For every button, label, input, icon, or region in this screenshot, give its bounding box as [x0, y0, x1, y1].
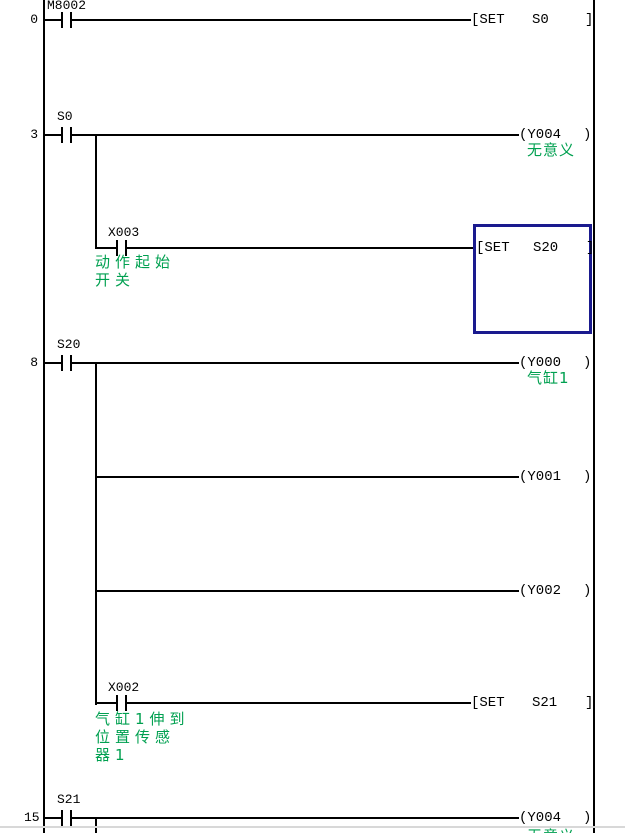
- set-operand: S0: [532, 13, 549, 27]
- rung-step-number: 8: [24, 356, 38, 369]
- device-comment-line1: 动作起始: [95, 255, 175, 271]
- wire: [127, 247, 473, 249]
- rung-step-number: 15: [24, 811, 38, 824]
- set-close-bracket: ]: [585, 13, 593, 27]
- set-operand: S21: [532, 696, 557, 710]
- device-comment-line3: 器1: [95, 748, 130, 764]
- wire: [95, 476, 519, 478]
- coil-y004-2[interactable]: (Y004 ): [519, 811, 593, 827]
- contact-bar: [61, 127, 63, 143]
- left-power-rail: [43, 0, 45, 833]
- coil-open-label: (Y000: [519, 356, 561, 370]
- contact-bar: [61, 810, 63, 826]
- branch-wire-vertical: [95, 817, 97, 833]
- set-operand: S20: [533, 241, 558, 255]
- wire: [44, 817, 61, 819]
- device-comment: 气缸1: [527, 371, 570, 387]
- device-comment-clipped: 无意义: [527, 829, 575, 833]
- coil-close-paren: ): [583, 128, 591, 142]
- wire: [44, 362, 61, 364]
- set-opcode: [SET: [471, 13, 505, 27]
- wire: [95, 247, 116, 249]
- contact-no-x002[interactable]: [116, 695, 127, 711]
- contact-bar: [61, 355, 63, 371]
- wire: [71, 817, 519, 819]
- coil-y001[interactable]: (Y001 ): [519, 470, 593, 486]
- coil-open-label: (Y004: [519, 128, 561, 142]
- coil-y002[interactable]: (Y002 ): [519, 584, 593, 600]
- rung-step-number: 3: [24, 128, 38, 141]
- set-instruction-s20[interactable]: [SET S20 ]: [476, 241, 598, 257]
- set-opcode: [SET: [476, 241, 510, 255]
- coil-close-paren: ): [583, 470, 591, 484]
- coil-open-label: (Y004: [519, 811, 561, 825]
- contact-bar: [116, 695, 118, 711]
- wire: [44, 134, 61, 136]
- wire: [95, 702, 116, 704]
- contact-device-label: X003: [108, 226, 139, 239]
- window-edge-divider: [0, 826, 625, 828]
- device-comment-line2: 开关: [95, 273, 135, 289]
- coil-close-paren: ): [583, 811, 591, 825]
- branch-wire-vertical: [95, 362, 97, 705]
- wire: [71, 19, 471, 21]
- coil-open-label: (Y001: [519, 470, 561, 484]
- device-comment-line2: 位置传感: [95, 730, 175, 746]
- wire: [95, 590, 519, 592]
- set-close-bracket: ]: [585, 696, 593, 710]
- coil-close-paren: ): [583, 584, 591, 598]
- contact-bar: [61, 12, 63, 28]
- wire: [127, 702, 471, 704]
- wire: [71, 362, 519, 364]
- set-close-bracket: ]: [586, 241, 594, 255]
- wire: [71, 134, 519, 136]
- set-opcode: [SET: [471, 696, 505, 710]
- contact-device-label: S20: [57, 338, 80, 351]
- branch-wire-vertical: [95, 134, 97, 249]
- contact-device-label: S0: [57, 110, 73, 123]
- set-instruction-s0[interactable]: [SET S0 ]: [471, 13, 593, 29]
- rung-step-number: 0: [24, 13, 38, 26]
- wire: [44, 19, 61, 21]
- contact-device-label: S21: [57, 793, 80, 806]
- device-comment-line1: 气缸1伸到: [95, 712, 190, 728]
- contact-device-label: M8002: [47, 0, 86, 12]
- coil-close-paren: ): [583, 356, 591, 370]
- device-comment: 无意义: [527, 143, 575, 159]
- coil-open-label: (Y002: [519, 584, 561, 598]
- set-instruction-s21[interactable]: [SET S21 ]: [471, 696, 593, 712]
- contact-device-label: X002: [108, 681, 139, 694]
- ladder-diagram-canvas: 0 M8002 [SET S0 ] 3 S0 (Y004 ) 无意义 X003: [0, 0, 625, 833]
